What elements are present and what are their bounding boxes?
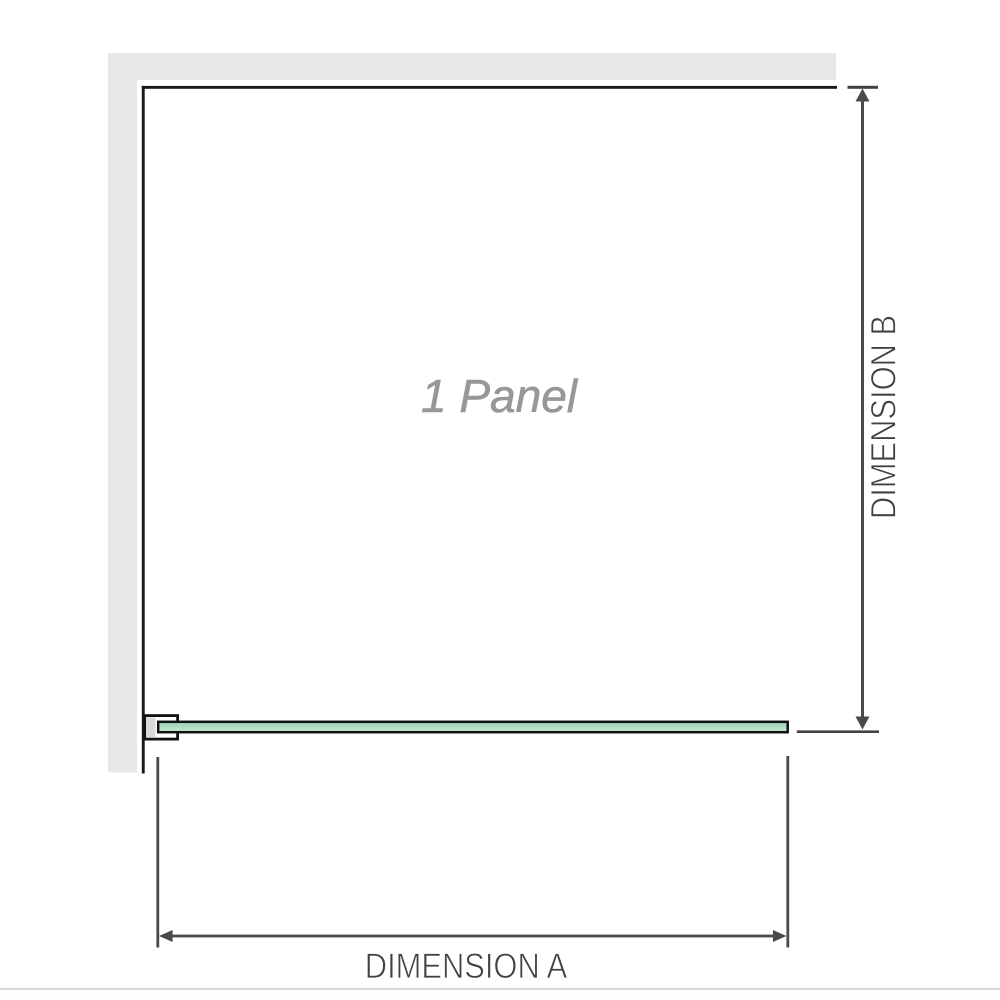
svg-text:1 Panel: 1 Panel <box>421 370 579 422</box>
svg-text:DIMENSION B: DIMENSION B <box>865 315 904 519</box>
svg-text:DIMENSION A: DIMENSION A <box>365 947 568 986</box>
